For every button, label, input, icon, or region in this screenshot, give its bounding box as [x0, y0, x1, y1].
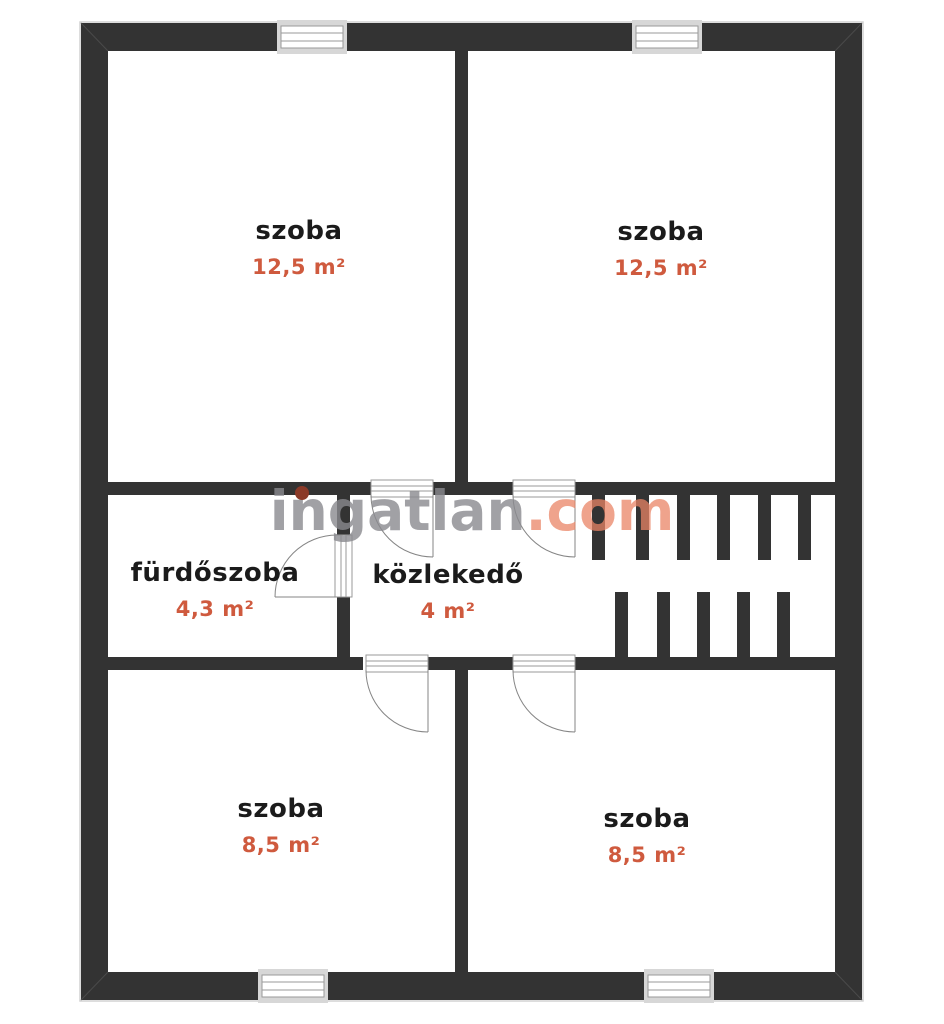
- door-hall-to-room-top-right: [513, 480, 575, 557]
- room-label-bottom-right: szoba 8,5 m²: [603, 804, 690, 868]
- room-name: szoba: [603, 804, 690, 834]
- door-hall-to-room-bottom-left: [366, 655, 428, 732]
- room-name: szoba: [252, 216, 346, 246]
- room-name: fürdőszoba: [131, 558, 300, 588]
- watermark-i-dot: [295, 486, 309, 500]
- room-area: 4,3 m²: [131, 597, 300, 622]
- exterior-walls: [81, 23, 862, 1000]
- corner-miters: [81, 23, 862, 1000]
- floorplan-drawing: [0, 0, 944, 1024]
- window-bottom-right: [644, 969, 714, 1003]
- window-top-right: [632, 20, 702, 54]
- room-area: 8,5 m²: [237, 833, 324, 858]
- window-top-left: [277, 20, 347, 54]
- room-label-bathroom: fürdőszoba 4,3 m²: [131, 558, 300, 622]
- floorplan-page: szoba 12,5 m² szoba 12,5 m² fürdőszoba 4…: [0, 0, 944, 1024]
- room-name: szoba: [614, 217, 708, 247]
- room-name: szoba: [237, 794, 324, 824]
- room-area: 12,5 m²: [614, 256, 708, 281]
- room-area: 4 m²: [372, 599, 523, 624]
- room-label-top-left: szoba 12,5 m²: [252, 216, 346, 280]
- staircase: [592, 495, 811, 657]
- room-area: 12,5 m²: [252, 255, 346, 280]
- room-label-bottom-left: szoba 8,5 m²: [237, 794, 324, 858]
- room-name: közlekedő: [372, 560, 523, 590]
- room-area: 8,5 m²: [603, 843, 690, 868]
- room-label-hallway: közlekedő 4 m²: [372, 560, 523, 624]
- door-hall-to-room-top-left: [371, 480, 433, 557]
- door-hall-to-room-bottom-right: [513, 655, 575, 732]
- window-bottom-left: [258, 969, 328, 1003]
- room-label-top-right: szoba 12,5 m²: [614, 217, 708, 281]
- exterior-outline: [80, 22, 863, 1001]
